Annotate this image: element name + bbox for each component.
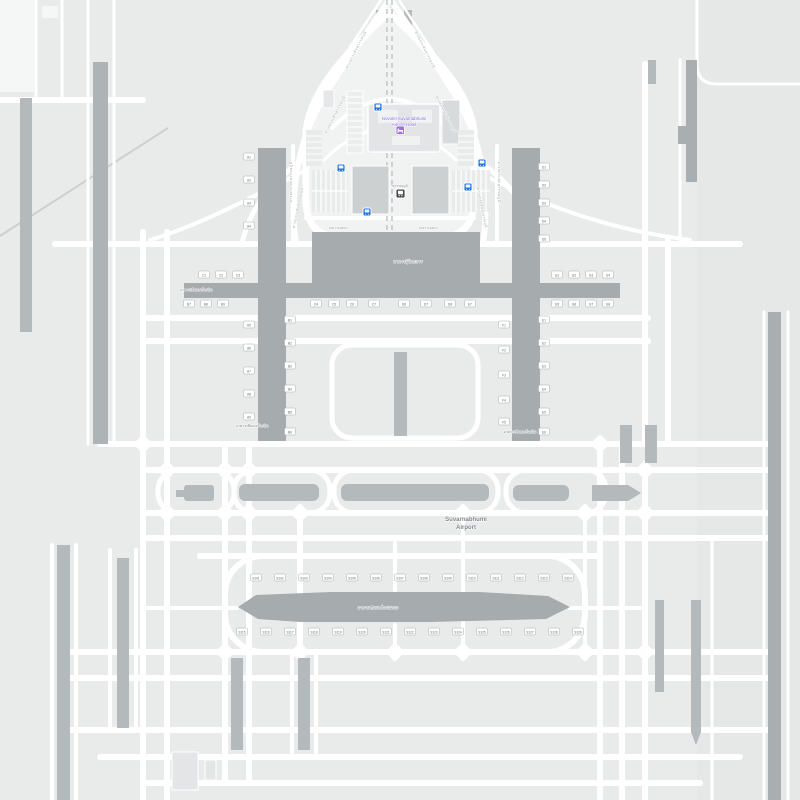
- svg-text:G4: G4: [606, 273, 610, 277]
- gate-badge: B8: [201, 300, 212, 307]
- gate-badge: S116: [261, 628, 272, 635]
- svg-text:D6: D6: [402, 302, 406, 306]
- airport-label-line1[interactable]: Suvarnabhumi: [445, 517, 487, 523]
- gate-badge: S114: [563, 574, 574, 581]
- gate-badge: B9: [218, 300, 229, 307]
- gate-badge: A7: [244, 367, 255, 374]
- svg-text:S113: S113: [540, 576, 547, 580]
- gate-badge: D2: [539, 181, 550, 188]
- gate-badge: E6: [539, 428, 550, 435]
- gate-badge: D7: [421, 300, 432, 307]
- svg-text:G8: G8: [606, 302, 610, 306]
- svg-text:G3: G3: [589, 273, 593, 277]
- parking-label-west: อาคารจอดรถ: [329, 226, 348, 230]
- svg-text:S128: S128: [550, 630, 558, 634]
- gate-badge: F3: [499, 371, 510, 378]
- gate-badge: S112: [515, 574, 526, 581]
- svg-text:D3: D3: [542, 201, 546, 205]
- svg-text:A5: A5: [247, 323, 251, 327]
- svg-text:S111: S111: [493, 576, 500, 580]
- svg-text:D4: D4: [542, 219, 546, 223]
- svg-text:D1: D1: [542, 165, 546, 169]
- gate-badge: S119: [333, 628, 344, 635]
- svg-text:S122: S122: [406, 630, 414, 634]
- gate-badge: S121: [381, 628, 392, 635]
- satellite-label: อาคารเทียบเครื่องบินรอง: [358, 605, 399, 610]
- gate-badge: C1: [199, 271, 210, 278]
- gate-badge: F2: [499, 346, 510, 353]
- svg-text:C7: C7: [372, 302, 376, 306]
- train-station-icon[interactable]: [396, 189, 405, 198]
- gate-badge: E3: [539, 362, 550, 369]
- svg-text:C3: C3: [236, 273, 240, 277]
- svg-text:A2: A2: [247, 178, 251, 182]
- svg-text:S109: S109: [444, 576, 452, 580]
- svg-text:C2: C2: [219, 273, 223, 277]
- gate-badge: A1: [244, 153, 255, 160]
- gate-badge: G7: [586, 300, 597, 307]
- svg-text:D8: D8: [448, 302, 452, 306]
- gate-badge: B2: [285, 339, 296, 346]
- concourse-pier-west: [258, 148, 286, 441]
- svg-text:B5: B5: [288, 410, 292, 414]
- svg-text:F5: F5: [502, 420, 506, 424]
- svg-text:B6: B6: [288, 430, 292, 434]
- svg-text:S112: S112: [516, 576, 523, 580]
- hotel-label-line1[interactable]: Novotel Suvarnabhumi: [382, 116, 426, 121]
- svg-text:A1: A1: [247, 155, 251, 159]
- parking-garage: [347, 91, 363, 153]
- svg-text:S124: S124: [454, 630, 462, 634]
- airport-map-svg: Novotel Suvarnabhumi Airport Hotel สุวรร…: [0, 0, 800, 800]
- svg-text:B8: B8: [204, 302, 208, 306]
- svg-text:E5: E5: [542, 410, 546, 414]
- gate-badge: S109: [443, 574, 454, 581]
- svg-text:S127: S127: [526, 630, 534, 634]
- svg-text:E1: E1: [542, 318, 546, 322]
- svg-text:S129: S129: [574, 630, 582, 634]
- gate-badge: A3: [244, 199, 255, 206]
- gate-badge: S110: [467, 574, 478, 581]
- svg-text:A9: A9: [247, 415, 251, 419]
- svg-text:S105: S105: [348, 576, 356, 580]
- bus-stop-icon[interactable]: [464, 183, 472, 191]
- gate-badge: S103: [299, 574, 310, 581]
- gate-badge: S120: [357, 628, 368, 635]
- gate-badge: A9: [244, 413, 255, 420]
- gate-badge: S126: [501, 628, 512, 635]
- gate-badge: S107: [395, 574, 406, 581]
- svg-text:S121: S121: [382, 630, 390, 634]
- gate-badge: B3: [285, 362, 296, 369]
- svg-text:S119: S119: [334, 630, 341, 634]
- hotel-icon[interactable]: [396, 126, 405, 135]
- gate-badge: C5: [329, 300, 340, 307]
- concourse-label-east: อาคารเทียบเครื่องบิน: [504, 429, 537, 434]
- svg-text:C6: C6: [350, 302, 354, 306]
- gate-badge: B6: [285, 428, 296, 435]
- gate-badge: C4: [311, 300, 322, 307]
- svg-text:G6: G6: [572, 302, 576, 306]
- svg-text:B2: B2: [288, 341, 292, 345]
- gate-badge: B1: [285, 316, 296, 323]
- parking-label-east: อาคารจอดรถ: [419, 226, 438, 230]
- svg-text:G2: G2: [572, 273, 576, 277]
- terminal-hall-east: [412, 166, 449, 214]
- satellite-terminal: [238, 592, 570, 622]
- svg-text:G5: G5: [555, 302, 559, 306]
- gate-badge: F5: [499, 418, 510, 425]
- bus-stop-icon[interactable]: [363, 208, 371, 216]
- svg-text:G1: G1: [555, 273, 559, 277]
- gate-badge: S108: [419, 574, 430, 581]
- main-concourse-bar: [184, 283, 620, 298]
- svg-text:E2: E2: [542, 341, 546, 345]
- gate-badge: G4: [603, 271, 614, 278]
- gate-badge: F1: [499, 321, 510, 328]
- gate-badge: D1: [539, 163, 550, 170]
- svg-text:S114: S114: [564, 576, 571, 580]
- gate-badge: D8: [445, 300, 456, 307]
- gate-badge: S101: [251, 574, 262, 581]
- gate-badge: F4: [499, 396, 510, 403]
- svg-text:A6: A6: [247, 346, 251, 350]
- terminal-hall-west: [352, 166, 389, 214]
- svg-text:S101: S101: [252, 576, 260, 580]
- bus-stop-icon[interactable]: [374, 103, 382, 111]
- svg-text:B9: B9: [221, 302, 225, 306]
- svg-text:F4: F4: [502, 398, 506, 402]
- svg-text:A4: A4: [247, 224, 251, 228]
- gate-badge: S125: [477, 628, 488, 635]
- gate-badge: A5: [244, 321, 255, 328]
- svg-text:S104: S104: [324, 576, 332, 580]
- gate-badge: S105: [347, 574, 358, 581]
- gate-badge: S102: [275, 574, 286, 581]
- svg-text:A8: A8: [247, 392, 251, 396]
- gate-badge: E7: [465, 300, 476, 307]
- gate-badge: A2: [244, 176, 255, 183]
- gate-badge: S128: [549, 628, 560, 635]
- gate-badge: C2: [216, 271, 227, 278]
- svg-text:C5: C5: [332, 302, 336, 306]
- main-terminal-building: [312, 232, 480, 283]
- gate-badge: C6: [347, 300, 358, 307]
- gate-badge: S117: [285, 628, 296, 635]
- svg-text:F2: F2: [502, 348, 506, 352]
- svg-text:S107: S107: [396, 576, 404, 580]
- gate-badge: S115: [237, 628, 248, 635]
- gate-badge: S124: [453, 628, 464, 635]
- svg-text:F1: F1: [502, 323, 506, 327]
- svg-text:S106: S106: [372, 576, 380, 580]
- svg-text:S120: S120: [358, 630, 366, 634]
- svg-text:F3: F3: [502, 373, 506, 377]
- gate-badge: S113: [539, 574, 550, 581]
- gate-badge: A6: [244, 344, 255, 351]
- svg-text:S110: S110: [468, 576, 475, 580]
- gate-badge: B5: [285, 408, 296, 415]
- svg-text:D7: D7: [424, 302, 428, 306]
- gate-badge: B7: [184, 300, 195, 307]
- bus-stop-icon[interactable]: [337, 164, 345, 172]
- gate-badge: C7: [369, 300, 380, 307]
- svg-text:S125: S125: [478, 630, 486, 634]
- svg-text:C4: C4: [314, 302, 318, 306]
- gate-badge: S111: [491, 574, 502, 581]
- svg-text:D5: D5: [542, 237, 546, 241]
- svg-text:B4: B4: [288, 387, 292, 391]
- gate-badge: G1: [552, 271, 563, 278]
- bus-stop-icon[interactable]: [478, 159, 486, 167]
- svg-text:E4: E4: [542, 387, 546, 391]
- map-canvas[interactable]: Novotel Suvarnabhumi Airport Hotel สุวรร…: [0, 0, 800, 800]
- svg-text:B3: B3: [288, 364, 292, 368]
- svg-text:B7: B7: [187, 302, 191, 306]
- svg-text:S108: S108: [420, 576, 428, 580]
- svg-text:B1: B1: [288, 318, 292, 322]
- gate-badge: S127: [525, 628, 536, 635]
- gate-badge: A4: [244, 222, 255, 229]
- svg-text:G7: G7: [589, 302, 593, 306]
- gate-badge: S122: [405, 628, 416, 635]
- svg-text:S126: S126: [502, 630, 510, 634]
- gate-badge: E4: [539, 385, 550, 392]
- gate-badge: D5: [539, 235, 550, 242]
- gate-badge: G3: [586, 271, 597, 278]
- svg-text:E3: E3: [542, 364, 546, 368]
- svg-text:A7: A7: [247, 369, 251, 373]
- svg-text:S118: S118: [310, 630, 317, 634]
- svg-text:E6: E6: [542, 430, 546, 434]
- gate-badge: G2: [569, 271, 580, 278]
- svg-text:A3: A3: [247, 201, 251, 205]
- gate-badge: G8: [603, 300, 614, 307]
- svg-text:S115: S115: [238, 630, 245, 634]
- concourse-label-main: อาคารเทียบเครื่องบิน: [180, 287, 213, 292]
- gate-badge: G5: [552, 300, 563, 307]
- gate-badge: E2: [539, 339, 550, 346]
- svg-text:D2: D2: [542, 183, 546, 187]
- svg-text:S103: S103: [300, 576, 308, 580]
- concourse-label-west: อาคารเทียบเครื่องบิน: [236, 423, 269, 428]
- gate-badge: S129: [573, 628, 584, 635]
- gate-badge: G6: [569, 300, 580, 307]
- gate-badge: E1: [539, 316, 550, 323]
- gate-badge: B4: [285, 385, 296, 392]
- svg-text:S117: S117: [286, 630, 293, 634]
- svg-text:S123: S123: [430, 630, 438, 634]
- airport-label-line2[interactable]: Airport: [456, 525, 476, 531]
- gate-badge: D6: [399, 300, 410, 307]
- gate-badge: E5: [539, 408, 550, 415]
- svg-text:C1: C1: [202, 273, 206, 277]
- gate-badge: C3: [233, 271, 244, 278]
- gate-badge: S106: [371, 574, 382, 581]
- gate-badge: D4: [539, 217, 550, 224]
- gate-badge: A8: [244, 390, 255, 397]
- gate-badge: D3: [539, 199, 550, 206]
- svg-text:S116: S116: [262, 630, 269, 634]
- svg-text:S102: S102: [276, 576, 284, 580]
- concourse-pier-east: [512, 148, 540, 441]
- gate-badge: S104: [323, 574, 334, 581]
- gate-badge: S123: [429, 628, 440, 635]
- gate-badge: S118: [309, 628, 320, 635]
- svg-text:E7: E7: [468, 302, 472, 306]
